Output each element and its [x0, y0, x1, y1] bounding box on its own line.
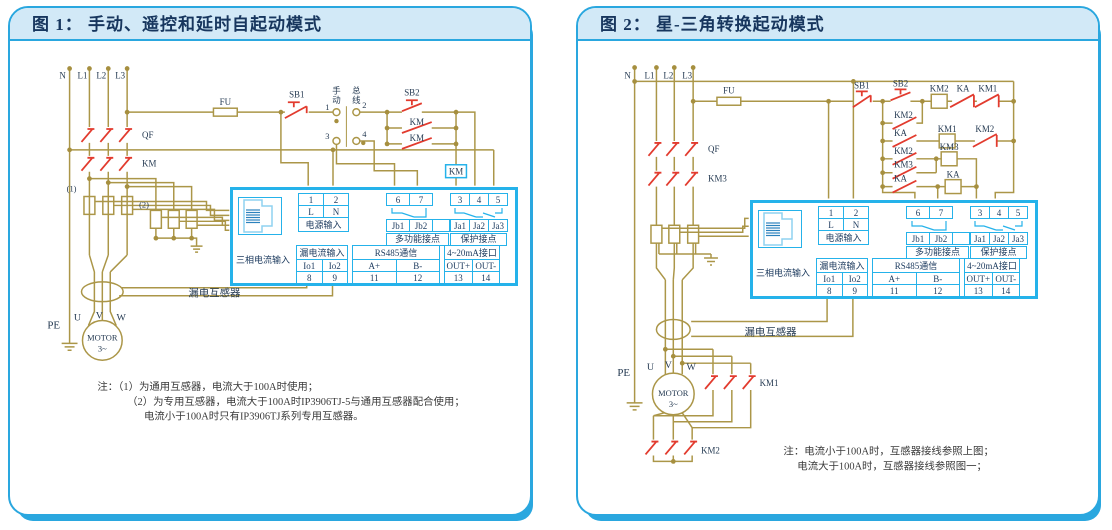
leakage-ct-label: 漏电互感器 [188, 287, 241, 300]
terminal-io2: Io2 [842, 273, 868, 285]
sb1-label: SB1 [289, 89, 304, 99]
wire-label-l1: L1 [78, 70, 88, 80]
terminal-8: 8 [817, 285, 843, 297]
sb1-button [285, 102, 307, 118]
terminal-14: 14 [992, 285, 1020, 297]
contacts [81, 100, 431, 170]
km1-main-label: KM1 [760, 378, 779, 388]
leak-header: 漏电流输入 [297, 246, 348, 260]
km2-main-label: KM2 [701, 445, 720, 455]
sel-num-2: 2 [362, 100, 366, 110]
sel-num-4: 4 [362, 129, 367, 139]
terminal-io1: Io1 [817, 273, 843, 285]
sb1-label: SB1 [854, 80, 869, 90]
qf-breaker-contacts [648, 143, 698, 156]
three-phase-ct-connector-icon [758, 210, 802, 248]
terminal-ja1: Ja1 [971, 233, 990, 245]
multi-terminals: 6 7 [906, 206, 953, 219]
km1-top-label: KM1 [978, 83, 997, 93]
r4-km3-label: KM3 [940, 142, 959, 152]
power-input-header: 电源输入 [299, 218, 349, 232]
wire-label-l2: L2 [663, 70, 673, 80]
terminal-io2: Io2 [322, 260, 348, 272]
terminal-11: 11 [353, 272, 397, 284]
rj-plug-icon [759, 211, 801, 247]
terminal-out-plus: OUT+ [445, 260, 473, 272]
terminal-out-minus: OUT- [472, 260, 500, 272]
km-r3-label: KM [410, 133, 424, 143]
w-label: W [116, 313, 126, 324]
leak-input-table: 漏电流输入 Io1 Io2 8 9 [816, 258, 868, 297]
ct-input-label: 三相电流输入 [754, 266, 812, 279]
terminal-4: 4 [470, 194, 489, 206]
page: 图 1： 手动、遥控和延时自起动模式 [0, 0, 1112, 530]
km2-main-contacts [646, 442, 698, 455]
ma-output-table: 4~20mA接口 OUT+ OUT- 13 14 [964, 258, 1020, 297]
terminal-io1: Io1 [297, 260, 323, 272]
km2-nc-contact-r3 [973, 134, 997, 147]
km-coil-label: KM [449, 167, 463, 177]
terminal-7: 7 [410, 194, 433, 206]
fuse-label: FU [723, 85, 735, 95]
r3-ka-label: KA [894, 128, 907, 138]
km-label: KM [142, 159, 156, 169]
terminal-3: 3 [451, 194, 470, 206]
ct2-label: (2) [139, 199, 149, 209]
ct2-b [168, 210, 179, 228]
motor-label: MOTOR [658, 388, 689, 398]
three-phase-ct-connector-icon [238, 197, 282, 235]
jb-terminals: Jb1 Jb2 [386, 219, 450, 232]
ka-top-label: KA [957, 83, 970, 93]
wire-label-n: N [624, 70, 631, 80]
prot-terminals: 3 4 5 [450, 193, 508, 206]
terminal-13: 13 [445, 272, 473, 284]
terminal-12: 12 [916, 285, 960, 297]
terminal-ja2: Ja2 [470, 220, 489, 232]
w-label: W [686, 362, 696, 373]
wire-label-l2: L2 [96, 70, 106, 80]
motor-phase-label: 3~ [98, 343, 107, 353]
km-r2-label: KM [410, 117, 424, 127]
ct-a [651, 225, 662, 243]
terminal-11: 11 [873, 285, 917, 297]
r6-ka-coil-label: KA [947, 170, 960, 180]
km3-contactor-contacts [648, 173, 698, 186]
protector-terminal-box: 三相电流输入 1 2 L N 电源输入 6 7 Jb1 Jb2 多功能接点 3 … [230, 187, 518, 286]
leak-header: 漏电流输入 [817, 259, 868, 273]
u-label: U [647, 362, 654, 373]
terminal-L: L [299, 206, 324, 218]
terminal-6: 6 [387, 194, 410, 206]
ma-header: 4~20mA接口 [445, 246, 500, 260]
terminal-a-plus: A+ [873, 273, 917, 285]
prot-contact-glyph [970, 220, 1027, 231]
wire-label-n: N [59, 70, 66, 80]
motor-phase-label: 3~ [669, 399, 678, 409]
terminal-ja1: Ja1 [451, 220, 470, 232]
r4-km2-label: KM2 [894, 146, 913, 156]
terminal-13: 13 [965, 285, 993, 297]
terminal-1: 1 [299, 194, 324, 206]
terminal-14: 14 [472, 272, 500, 284]
figure2-panel: 图 2： 星-三角转换起动模式 [576, 6, 1100, 516]
terminal-out-minus: OUT- [992, 273, 1020, 285]
terminal-N: N [324, 206, 349, 218]
terminal-ja3: Ja3 [1009, 233, 1028, 245]
multi-terminals: 6 7 [386, 193, 433, 206]
notes: 注：（1）为通用互感器，电流大于100A时使用； （2）为专用互感器，电流大于1… [97, 380, 464, 423]
selector-term2 [353, 109, 360, 116]
fuse-fu [213, 108, 237, 116]
ma-header: 4~20mA接口 [965, 259, 1020, 273]
u-label: U [74, 313, 81, 324]
terminal-8: 8 [297, 272, 323, 284]
terminal-L: L [819, 219, 844, 231]
km2-coil-label: KM2 [930, 83, 949, 93]
leakage-ct-label: 漏电互感器 [745, 325, 798, 338]
terminal-5: 5 [489, 194, 508, 206]
power-input-table: 1 2 L N 电源输入 [298, 193, 349, 232]
selector-term3 [333, 137, 340, 144]
ja-terminals: Ja1 Ja2 Ja3 [970, 232, 1028, 245]
km-contactor-contacts [81, 158, 132, 171]
selector-term4 [353, 137, 360, 144]
motor-label: MOTOR [87, 332, 118, 342]
multi-contact-glyph [906, 220, 952, 231]
km3-label: KM3 [708, 174, 727, 184]
terminal-b-minus: B- [916, 273, 960, 285]
terminal-3: 3 [971, 207, 990, 219]
terminal-jb1: Jb1 [387, 220, 410, 232]
sb2-button [402, 100, 422, 111]
leak-input-table: 漏电流输入 Io1 Io2 8 9 [296, 245, 348, 284]
jb-terminals: Jb1 Jb2 [906, 232, 970, 245]
ct-input-label: 三相电流输入 [234, 253, 292, 266]
multi-contact-glyph [386, 207, 432, 218]
note-line-2: （2）为专用互感器，电流大于100A时IP3906TJ-5与通用互感器配合使用； [127, 395, 465, 408]
r3-km1-label: KM1 [938, 124, 957, 134]
terminal-N: N [844, 219, 869, 231]
sb2-button [891, 89, 911, 100]
terminal-ja2: Ja2 [990, 233, 1009, 245]
ka-coil [945, 180, 961, 194]
km2-coil [931, 94, 947, 108]
pe-label: PE [617, 367, 630, 379]
terminal-9: 9 [322, 272, 348, 284]
terminal-blank [953, 233, 970, 245]
terminal-jb2: Jb2 [930, 233, 953, 245]
r6-ka-label: KA [894, 174, 907, 184]
ct2-c [186, 210, 197, 228]
figure1-panel: 图 1： 手动、遥控和延时自起动模式 [8, 6, 532, 516]
terminal-jb2: Jb2 [410, 220, 433, 232]
note-line-2: 电流大于100A时，互感器接线参照图一； [797, 459, 987, 472]
km1-nc-contact [975, 94, 999, 107]
terminal-b-minus: B- [396, 260, 440, 272]
note-line-1: 注：电流小于100A时，互感器接线参照上图； [783, 444, 993, 457]
terminal-2: 2 [844, 207, 869, 219]
ja-terminals: Ja1 Ja2 Ja3 [450, 219, 508, 232]
note-line-3: 电流小于100A时只有IP3906TJ系列专用互感器。 [144, 410, 364, 423]
ct2-a [150, 210, 161, 228]
note-line-1: 注：（1）为通用互感器，电流大于100A时使用； [97, 380, 318, 393]
bus-label-2: 线 [352, 95, 361, 105]
terminal-a-plus: A+ [353, 260, 397, 272]
terminal-12: 12 [396, 272, 440, 284]
pe-label: PE [47, 319, 60, 331]
terminal-4: 4 [990, 207, 1009, 219]
terminal-7: 7 [930, 207, 953, 219]
ct1-label: (1) [67, 184, 77, 194]
wire-label-l3: L3 [115, 70, 125, 80]
fuse-label: FU [220, 97, 232, 107]
terminal-ja3: Ja3 [489, 220, 508, 232]
terminal-out-plus: OUT+ [965, 273, 993, 285]
wire-label-l1: L1 [645, 70, 655, 80]
terminal-blank [433, 220, 450, 232]
sb1-button [853, 91, 871, 107]
fuse-fu [717, 97, 741, 105]
power-input-header: 电源输入 [819, 231, 869, 245]
rs485-table: RS485通信 A+ B- 11 12 [352, 245, 440, 284]
sb2-label: SB2 [404, 87, 419, 97]
manual-label-2: 动 [332, 95, 340, 105]
v-label: V [96, 311, 104, 322]
selector-term1 [333, 109, 340, 116]
terminal-2: 2 [324, 194, 349, 206]
ka-nc-contact [950, 94, 974, 107]
sel-num-3: 3 [325, 131, 329, 141]
r3-km2-label: KM2 [975, 124, 994, 134]
wire-label-l3: L3 [682, 70, 692, 80]
terminal-jb1: Jb1 [907, 233, 930, 245]
terminal-5: 5 [1009, 207, 1028, 219]
protector-terminal-box: 三相电流输入 1 2 L N 电源输入 6 7 Jb1 Jb2 多功能接点 3 … [750, 200, 1038, 299]
r2-km2-label: KM2 [894, 110, 913, 120]
terminal-6: 6 [907, 207, 930, 219]
terminal-9: 9 [842, 285, 868, 297]
qf-breaker-contacts [81, 129, 132, 142]
km3-coil [941, 152, 957, 166]
bus-label-1: 总 [352, 85, 361, 95]
manual-label-1: 手 [332, 85, 341, 95]
r5-km3-label: KM3 [894, 160, 913, 170]
km1-main-contacts [705, 376, 756, 389]
sb2-label: SB2 [893, 78, 908, 88]
prot-contact-glyph [450, 207, 507, 218]
ma-output-table: 4~20mA接口 OUT+ OUT- 13 14 [444, 245, 500, 284]
rs485-header: RS485通信 [873, 259, 960, 273]
rs485-header: RS485通信 [353, 246, 440, 260]
power-input-table: 1 2 L N 电源输入 [818, 206, 869, 245]
rj-plug-icon [239, 198, 281, 234]
terminal-1: 1 [819, 207, 844, 219]
qf-label: QF [708, 144, 719, 154]
notes: 注：电流小于100A时，互感器接线参照上图； 电流大于100A时，互感器接线参照… [783, 444, 993, 472]
sel-num-1: 1 [325, 102, 329, 112]
v-label: V [665, 360, 673, 371]
rs485-table: RS485通信 A+ B- 11 12 [872, 258, 960, 297]
qf-label: QF [142, 130, 153, 140]
prot-terminals: 3 4 5 [970, 206, 1028, 219]
